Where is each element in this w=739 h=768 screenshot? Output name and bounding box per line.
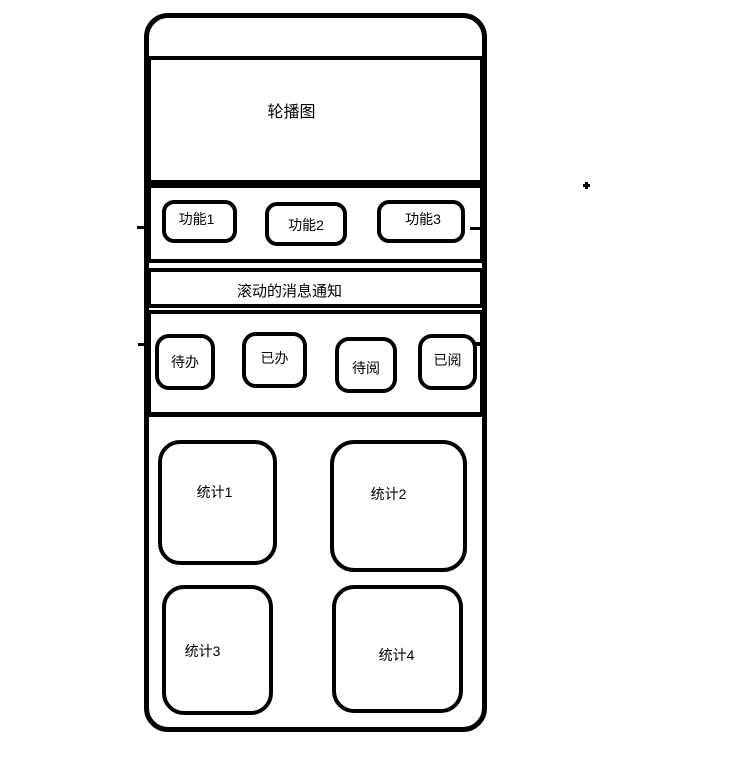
stray-plus-mark bbox=[583, 182, 590, 189]
stat-card-3-label: 统计3 bbox=[185, 641, 221, 661]
notice-ticker-label: 滚动的消息通知 bbox=[237, 280, 342, 301]
tick-mark-right-bottom bbox=[475, 342, 483, 346]
quick-action-to-read-label: 待阅 bbox=[352, 358, 380, 378]
quick-action-done-label: 已办 bbox=[261, 348, 289, 368]
quick-action-read[interactable]: 已阅 bbox=[418, 334, 477, 390]
stat-card-4[interactable]: 统计4 bbox=[332, 585, 463, 713]
wireframe-canvas: 轮播图 功能1 功能2 功能3 滚动的消息通知 待办 已办 待阅 bbox=[0, 0, 739, 768]
stat-card-3[interactable]: 统计3 bbox=[162, 585, 273, 715]
quick-action-todo[interactable]: 待办 bbox=[155, 334, 215, 390]
function-button-2-label: 功能2 bbox=[288, 215, 324, 235]
stat-card-2-label: 统计2 bbox=[371, 484, 407, 504]
function-button-3-label: 功能3 bbox=[405, 209, 441, 229]
notice-ticker-bar[interactable]: 滚动的消息通知 bbox=[147, 268, 484, 308]
stat-card-4-label: 统计4 bbox=[379, 645, 415, 665]
status-bar bbox=[149, 18, 482, 56]
quick-action-todo-label: 待办 bbox=[171, 352, 199, 372]
stat-card-1-label: 统计1 bbox=[197, 482, 233, 502]
tick-mark-right-top bbox=[470, 227, 481, 230]
carousel-placeholder[interactable]: 轮播图 bbox=[147, 56, 484, 184]
function-button-1[interactable]: 功能1 bbox=[162, 200, 237, 243]
carousel-label: 轮播图 bbox=[267, 98, 315, 122]
tick-mark-left-bottom bbox=[138, 343, 147, 346]
stat-card-2[interactable]: 统计2 bbox=[330, 440, 467, 572]
function-button-3[interactable]: 功能3 bbox=[377, 200, 465, 243]
stat-card-1[interactable]: 统计1 bbox=[158, 440, 277, 565]
function-button-2[interactable]: 功能2 bbox=[265, 202, 347, 246]
quick-action-read-label: 已阅 bbox=[434, 350, 462, 370]
function-button-1-label: 功能1 bbox=[179, 209, 215, 229]
quick-action-to-read[interactable]: 待阅 bbox=[335, 337, 397, 393]
quick-action-done[interactable]: 已办 bbox=[242, 332, 307, 388]
quick-actions-row: 待办 已办 待阅 已阅 bbox=[147, 310, 484, 417]
functions-row: 功能1 功能2 功能3 bbox=[147, 184, 484, 263]
tick-mark-left-top bbox=[137, 226, 147, 229]
phone-frame: 轮播图 功能1 功能2 功能3 滚动的消息通知 待办 已办 待阅 bbox=[144, 13, 487, 732]
